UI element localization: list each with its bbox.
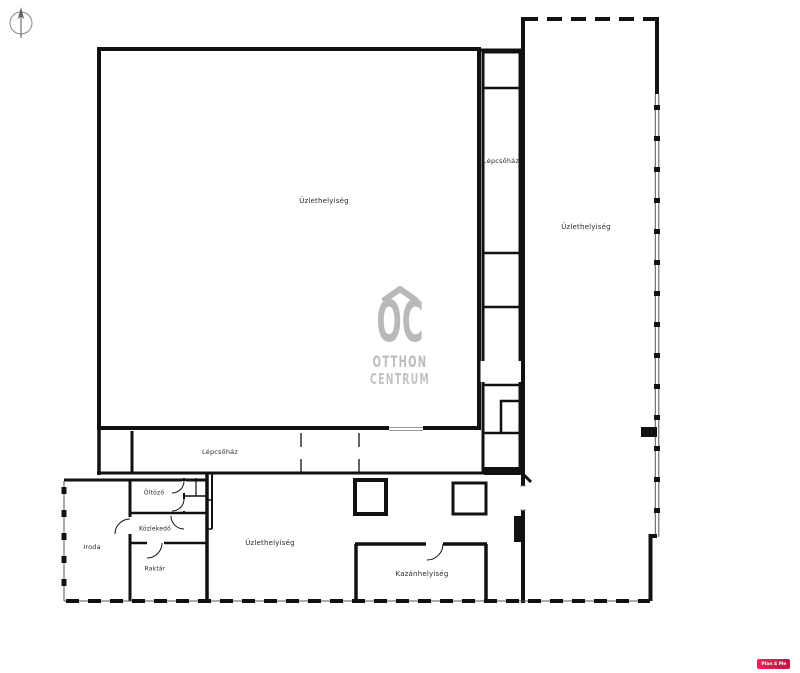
watermark-line2: CENTRUM [363,370,437,388]
room-label-boiler-room: Kazánhelyiség [396,570,449,578]
floorplan-canvas: OC OTTHON CENTRUM Üzlethelyiség Lépcsőhá… [0,0,800,673]
lower-stairhall-strip [97,430,483,475]
room-label-office: Iroda [83,543,101,551]
credit-badge-text: Plan 4 Me [761,661,786,666]
stairwell-column [481,52,523,473]
north-arrow-icon [6,4,40,44]
room-label-dressing-room: Öltöző [144,490,164,497]
credit-badge: Plan 4 Me [757,659,790,669]
office-block [64,473,208,601]
room-label-corridor: Közlekedő [139,526,171,533]
room-label-main-hall: Üzlethelyiség [299,197,349,205]
watermark-line1: OTTHON [363,352,437,371]
room-label-stairwell-upper: Lépcsőház [483,157,519,165]
room-label-right-hall: Üzlethelyiség [561,223,611,231]
right-hall-outline [520,17,659,603]
watermark-monogram: OC [374,294,426,351]
misc-structures [355,467,531,542]
room-label-storage: Raktár [145,566,166,573]
room-label-stairwell-lower: Lépcsőház [202,448,238,456]
main-hall-outline [99,49,523,432]
room-label-lower-hall: Üzlethelyiség [245,539,295,547]
